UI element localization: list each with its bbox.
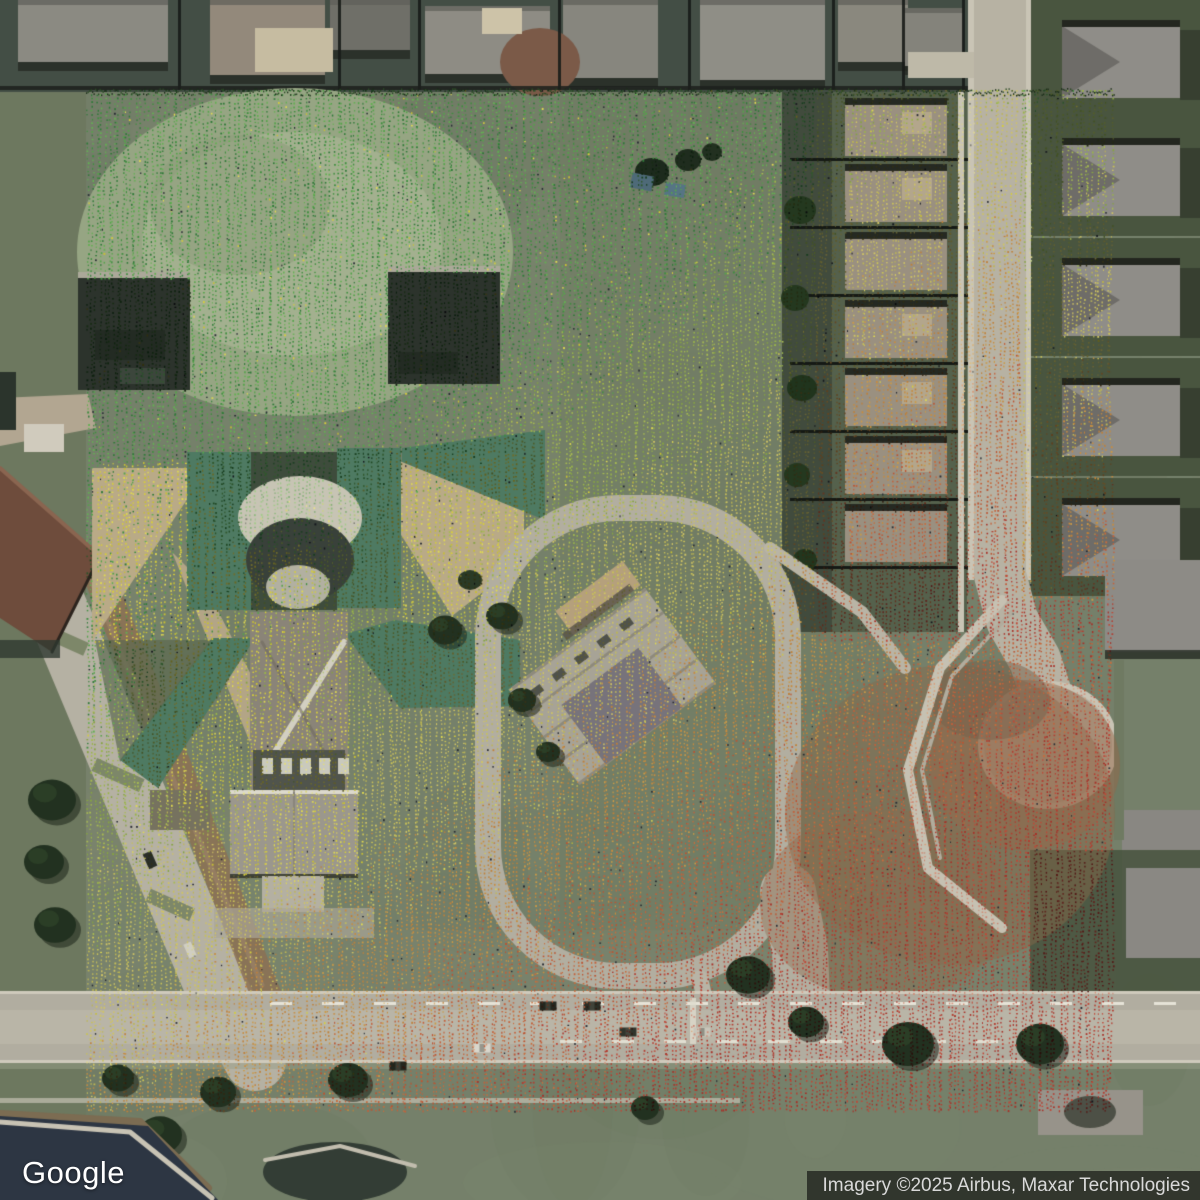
attribution-text: Imagery ©2025 Airbus, Maxar Technologies — [823, 1175, 1190, 1197]
map-viewport[interactable]: Google Imagery ©2025 Airbus, Maxar Techn… — [0, 0, 1200, 1200]
attribution-bar: Imagery ©2025 Airbus, Maxar Technologies — [807, 1171, 1200, 1200]
google-logo[interactable]: Google — [22, 1155, 125, 1191]
satellite-map-canvas[interactable] — [0, 0, 1200, 1200]
